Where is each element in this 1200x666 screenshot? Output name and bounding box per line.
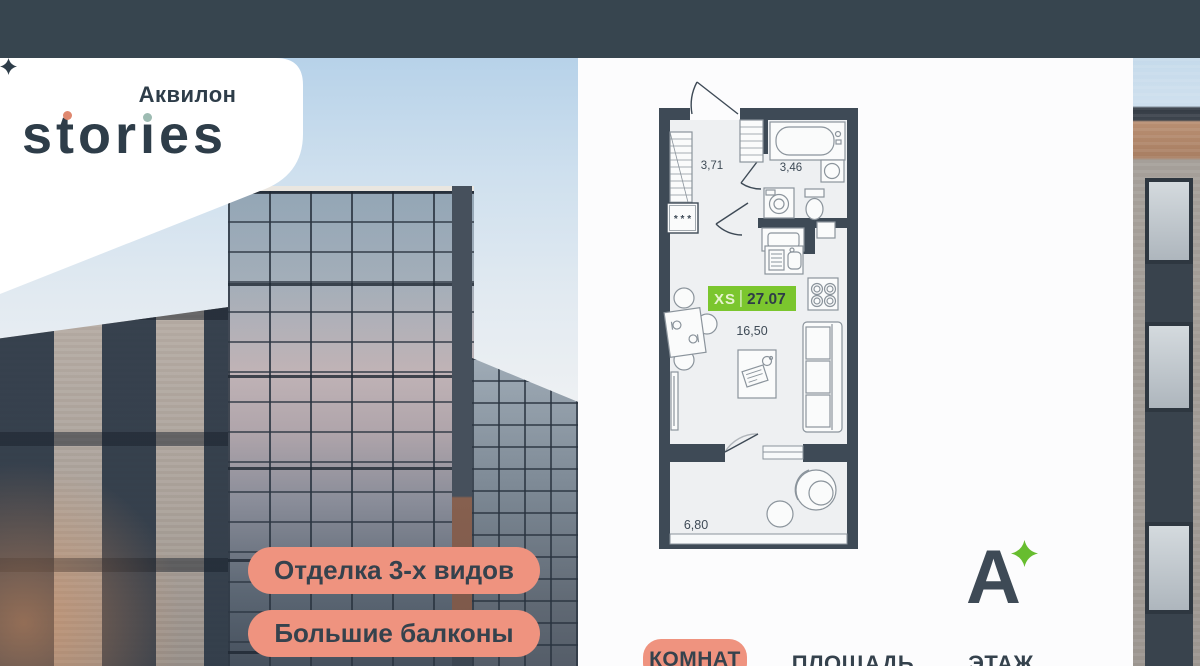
balcony-area-label: 6,80 <box>684 518 708 532</box>
window <box>1145 322 1193 412</box>
brand-logo: Аквилон storıes <box>0 58 310 298</box>
brand-wordmark-stories: storıes <box>22 108 227 162</box>
developer-logo: А <box>955 538 1050 623</box>
stove-asterisks: * * * <box>674 214 691 225</box>
brand-dot-orange <box>63 111 72 120</box>
feature-badge-balconies: Большие балконы <box>248 610 540 657</box>
hallway-area-label: 3,71 <box>701 160 723 172</box>
column-header-floor: ЭТАЖ <box>968 651 1033 666</box>
column-header-rooms: КОМНАТ <box>643 639 747 666</box>
spandrel-panel <box>1145 264 1193 322</box>
brand-dot-teal <box>143 113 152 122</box>
sparkle-icon <box>0 58 17 75</box>
spandrel-panel <box>1145 614 1193 666</box>
building-photo-strip <box>1133 58 1200 666</box>
plan-type-label: XS <box>714 291 736 308</box>
floorplan: * * * XS 27.07 3,71 3,46 16,50 6,80 <box>640 70 880 570</box>
bathroom-area-label: 3,46 <box>780 162 802 174</box>
living-area-label: 16,50 <box>736 324 767 338</box>
sparkle-icon <box>1011 540 1038 567</box>
plan-total-area: 27.07 <box>747 291 786 308</box>
top-bar <box>0 0 1200 58</box>
column-header-area: ПЛОЩАДЬ <box>792 651 914 666</box>
window-column <box>1145 58 1193 666</box>
area-badge: XS 27.07 <box>708 286 796 311</box>
tower-corner-column <box>452 186 472 666</box>
listing-card[interactable]: Аквилон storıes Отделка 3-х видов Больши… <box>0 0 1200 666</box>
feature-badge-finishing: Отделка 3-х видов <box>248 547 540 594</box>
window <box>1145 522 1193 614</box>
window <box>1145 178 1193 264</box>
brick-facade <box>0 306 236 666</box>
spandrel-panel <box>1145 412 1193 522</box>
